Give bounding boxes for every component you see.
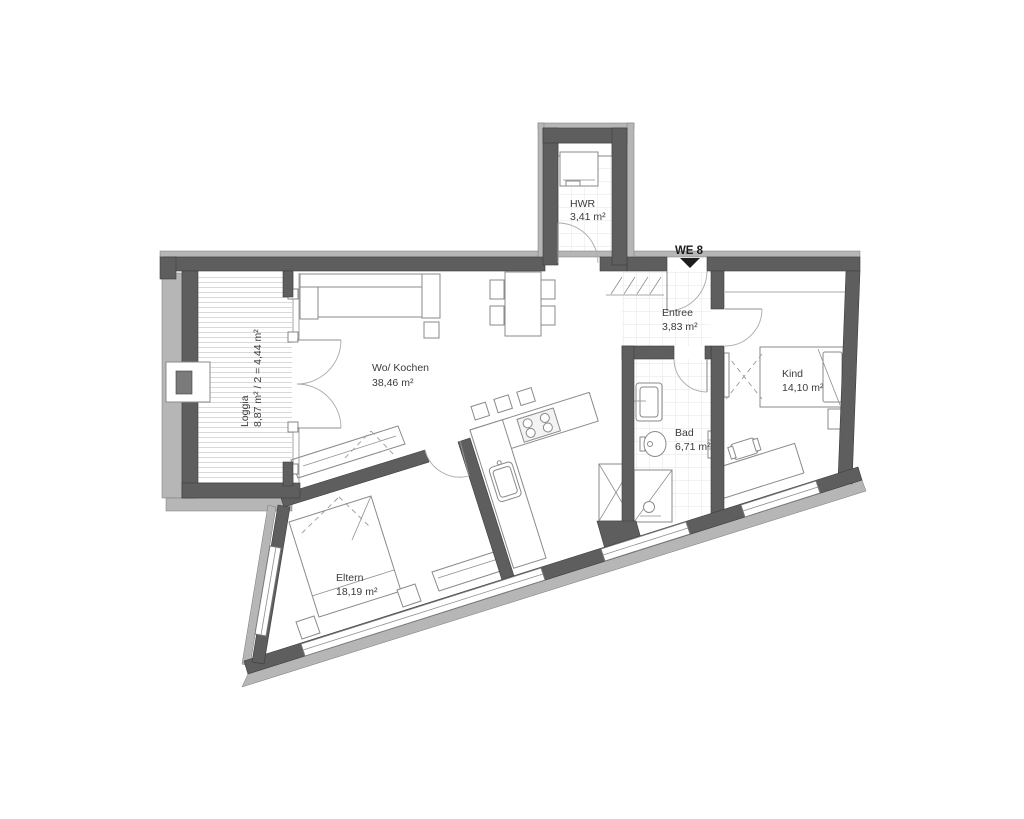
shower-icon [634, 470, 672, 522]
room-name: Entree [662, 307, 693, 319]
room-label-wohnen: Wo/ Kochen 38,46 m² [372, 362, 429, 389]
hwr-wall-right [612, 128, 627, 265]
room-area: 6,71 m² [675, 441, 711, 453]
dining-chair [490, 306, 504, 325]
nightstand [296, 616, 320, 639]
room-area: 8,87 m² / 2 = 4,44 m² [252, 329, 264, 427]
dining-table [505, 272, 541, 336]
room-name: Kind [782, 368, 803, 380]
room-area: 14,10 m² [782, 382, 824, 394]
nightstand [397, 584, 421, 607]
hwr-wall-left [543, 128, 558, 265]
unit-marker: WE 8 [675, 245, 704, 268]
radiator-kind [724, 353, 729, 397]
dining-set [490, 272, 555, 336]
room-name: Eltern [336, 572, 364, 584]
dining-chair [541, 280, 555, 299]
dining-chair [490, 280, 504, 299]
side-table [424, 322, 439, 338]
room-name: Wo/ Kochen [372, 362, 429, 374]
loggia-wall-south [182, 483, 300, 498]
room-area: 3,83 m² [662, 321, 698, 333]
bar-stool [494, 395, 513, 413]
room-name: Bad [675, 427, 694, 439]
unit-label: WE 8 [675, 245, 704, 257]
bar-stool [517, 388, 536, 406]
loggia-wall-box [166, 362, 210, 402]
kind-door [725, 309, 762, 346]
loggia-decking [198, 273, 292, 484]
washing-machine-icon [560, 152, 598, 186]
bathroom-sink-icon [634, 383, 662, 421]
dining-chair [541, 306, 555, 325]
bar-stool [471, 402, 490, 420]
floor-plan-canvas: WE 8 HWR 3,41 m² Entree 3,83 m² Wo/ Koch… [0, 0, 1024, 819]
room-name: HWR [570, 198, 595, 210]
entrance-direction-icon [680, 258, 700, 268]
loggia-double-door [297, 340, 341, 428]
wardrobe-dashes-kind [726, 354, 762, 399]
sofa [300, 274, 440, 338]
floor-plan: WE 8 HWR 3,41 m² Entree 3,83 m² Wo/ Koch… [0, 0, 1024, 819]
room-area: 3,41 m² [570, 211, 606, 223]
room-name: Loggia [239, 395, 251, 427]
room-area: 38,46 m² [372, 377, 414, 389]
pillow [823, 352, 842, 402]
room-area: 18,19 m² [336, 586, 378, 598]
